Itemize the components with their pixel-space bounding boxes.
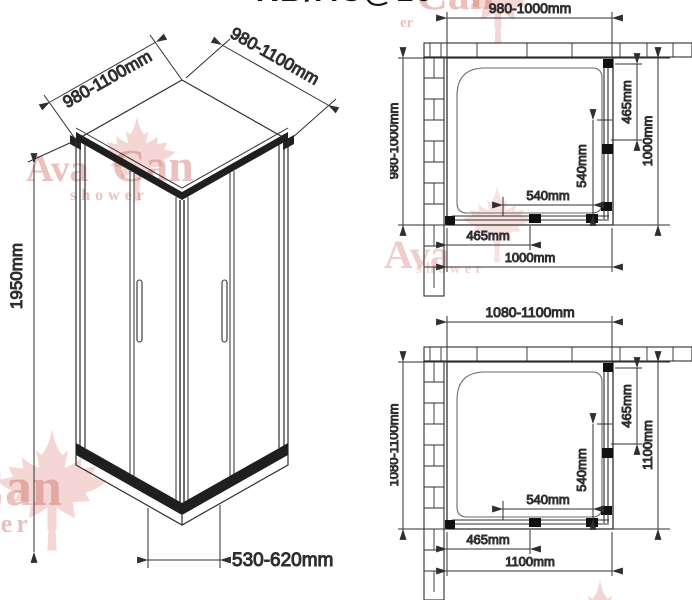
dim-height: 1950mm <box>7 142 72 552</box>
dim-height-label: 1950mm <box>7 243 26 309</box>
dim-left: 1080-1100mm <box>390 362 447 529</box>
dim-horiz-inner-label: 540mm <box>526 492 569 507</box>
dim-bottom-label: 1100mm <box>505 554 555 569</box>
dim-vert-inner-label: 540mm <box>574 144 589 187</box>
dim-right-inner: 465mm <box>611 368 642 444</box>
dim-bottom-inner: 465mm <box>447 226 530 250</box>
iso-view: 980-1100mm 980-1100mm 1950mm 530-620mm <box>0 0 390 600</box>
door-handle-right <box>222 280 227 342</box>
wall-top <box>424 43 692 57</box>
dim-right-inner: 465mm <box>611 64 642 140</box>
dim-top-label: 980-1000mm <box>489 0 572 16</box>
plan-view-bottom: 1080-1100mm 1080-1100mm 1100mm 465mm 540 <box>390 304 692 600</box>
dim-right-inner-label: 465mm <box>619 80 634 123</box>
plan-bottom-dimensions: 1080-1100mm 1080-1100mm 1100mm 465mm 540 <box>390 304 670 576</box>
dim-side-left-label: 980-1100mm <box>60 47 155 112</box>
dim-side-left: 980-1100mm <box>44 35 182 140</box>
dim-bottom-inner: 465mm <box>447 530 530 554</box>
dim-top: 1080-1100mm <box>447 304 612 362</box>
wall-left <box>424 361 444 600</box>
dim-door-label: 530-620mm <box>232 550 333 571</box>
plan-top-dimensions: 980-1000mm 980-1000mm 1000mm 465mm 540mm <box>390 0 670 272</box>
dim-horiz-inner: 540mm <box>503 188 593 216</box>
dim-vert-inner-label: 540mm <box>574 448 589 491</box>
dim-left: 980-1000mm <box>390 58 447 225</box>
dim-bottom-inner-label: 465mm <box>466 228 509 243</box>
model-title: KB/AC@10 <box>210 0 480 10</box>
iso-dimensions: 980-1100mm 980-1100mm 1950mm 530-620mm <box>7 24 336 571</box>
dim-horiz-inner: 540mm <box>503 492 593 520</box>
dim-horiz-inner-label: 540mm <box>526 188 569 203</box>
dim-bottom-inner-label: 465mm <box>466 532 509 547</box>
iso-enclosure <box>70 80 294 525</box>
dim-left-label: 980-1000mm <box>390 103 401 180</box>
wall-top <box>424 347 692 361</box>
dim-bottom-label: 1000mm <box>505 250 556 265</box>
dim-side-right: 980-1100mm <box>186 24 336 138</box>
dim-right-label: 1000mm <box>640 116 655 167</box>
dim-right-inner-label: 465mm <box>619 384 634 427</box>
plan-view-top: 980-1000mm 980-1000mm 1000mm 465mm 540mm <box>390 0 692 300</box>
door-handle-left <box>137 280 142 342</box>
dim-right-label: 1100mm <box>640 420 655 470</box>
dim-vert-inner: 540mm <box>574 120 612 215</box>
drawing-sheet: Ava Can shower Can wer Can er Ava shower… <box>0 0 692 600</box>
dim-door-width: 530-620mm <box>148 505 333 571</box>
dim-vert-inner: 540mm <box>574 424 612 519</box>
dim-top-label: 1080-1100mm <box>485 304 574 320</box>
dim-left-label: 1080-1100mm <box>390 404 401 487</box>
wall-left <box>424 57 444 296</box>
